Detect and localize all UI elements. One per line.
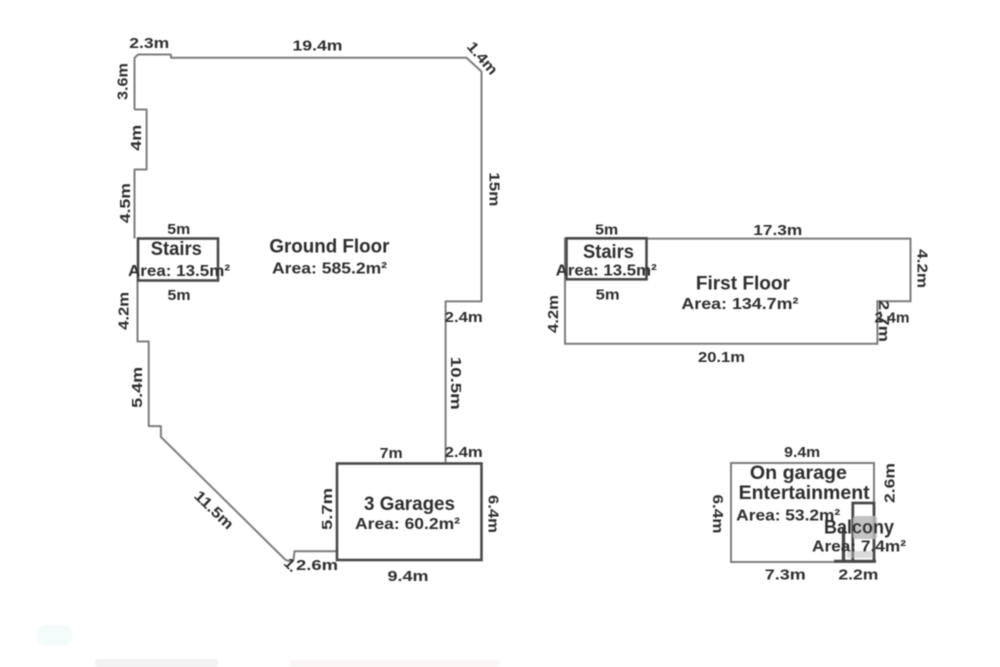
svg-text:2.7m: 2.7m xyxy=(875,300,892,342)
svg-text:5.7m: 5.7m xyxy=(319,488,336,530)
svg-text:3 Garages: 3 Garages xyxy=(364,494,455,515)
svg-text:5.4m: 5.4m xyxy=(129,367,146,408)
svg-text:7.3m: 7.3m xyxy=(765,567,806,584)
svg-text:Area: 60.2m²: Area: 60.2m² xyxy=(355,516,460,533)
svg-text:2.6m: 2.6m xyxy=(296,557,338,574)
svg-text:4.2m: 4.2m xyxy=(913,249,930,288)
svg-text:Area: 585.2m²: Area: 585.2m² xyxy=(272,261,387,278)
svg-text:2.4m: 2.4m xyxy=(445,444,483,461)
svg-text:15m: 15m xyxy=(485,172,502,206)
svg-text:Stairs: Stairs xyxy=(151,239,202,260)
svg-text:4m: 4m xyxy=(128,125,145,151)
svg-text:6.4m: 6.4m xyxy=(709,495,726,534)
svg-text:Area: 13.5m²: Area: 13.5m² xyxy=(128,263,230,280)
svg-text:9.4m: 9.4m xyxy=(388,568,429,585)
svg-text:11.5m: 11.5m xyxy=(190,488,236,534)
svg-text:7m: 7m xyxy=(380,445,403,462)
svg-text:On garage: On garage xyxy=(750,463,847,484)
svg-text:3.6m: 3.6m xyxy=(114,63,131,100)
svg-text:4.5m: 4.5m xyxy=(117,183,134,223)
svg-text:10.5m: 10.5m xyxy=(447,357,464,410)
svg-text:6.4m: 6.4m xyxy=(485,495,502,533)
svg-text:Balcony: Balcony xyxy=(824,518,894,539)
svg-text:Stairs: Stairs xyxy=(583,242,634,263)
svg-text:2.6m: 2.6m xyxy=(881,463,898,503)
svg-text:5m: 5m xyxy=(595,222,618,239)
svg-text:Entertainment: Entertainment xyxy=(739,483,871,504)
svg-text:19.4m: 19.4m xyxy=(293,38,343,55)
svg-text:2.4m: 2.4m xyxy=(445,309,483,326)
svg-text:5m: 5m xyxy=(596,287,620,304)
svg-text:Ground Floor: Ground Floor xyxy=(269,237,390,258)
svg-text:Area: 134.7m²: Area: 134.7m² xyxy=(681,296,798,313)
svg-text:5m: 5m xyxy=(167,221,190,238)
svg-text:9.4m: 9.4m xyxy=(784,444,820,461)
svg-text:Area: 13.5m²: Area: 13.5m² xyxy=(556,263,657,280)
svg-text:4.2m: 4.2m xyxy=(545,295,562,333)
svg-text:5m: 5m xyxy=(168,287,191,304)
svg-text:First Floor: First Floor xyxy=(696,274,791,295)
svg-text:2.2m: 2.2m xyxy=(838,567,878,584)
svg-text:4.2m: 4.2m xyxy=(115,292,132,330)
svg-text:Area: 7.4m²: Area: 7.4m² xyxy=(812,539,906,556)
svg-text:20.1m: 20.1m xyxy=(698,349,745,366)
svg-text:17.3m: 17.3m xyxy=(753,222,802,239)
svg-text:2.3m: 2.3m xyxy=(129,35,169,52)
